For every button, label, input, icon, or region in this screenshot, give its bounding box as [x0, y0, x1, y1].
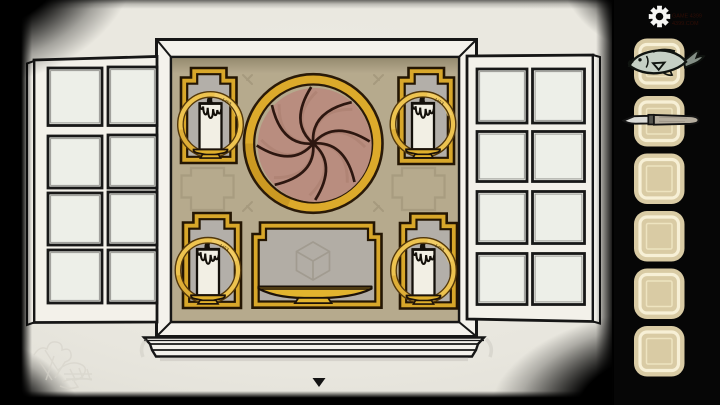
svg-text:4399.COM: 4399.COM: [672, 21, 699, 27]
svg-text:GAME 4399: GAME 4399: [672, 14, 702, 20]
